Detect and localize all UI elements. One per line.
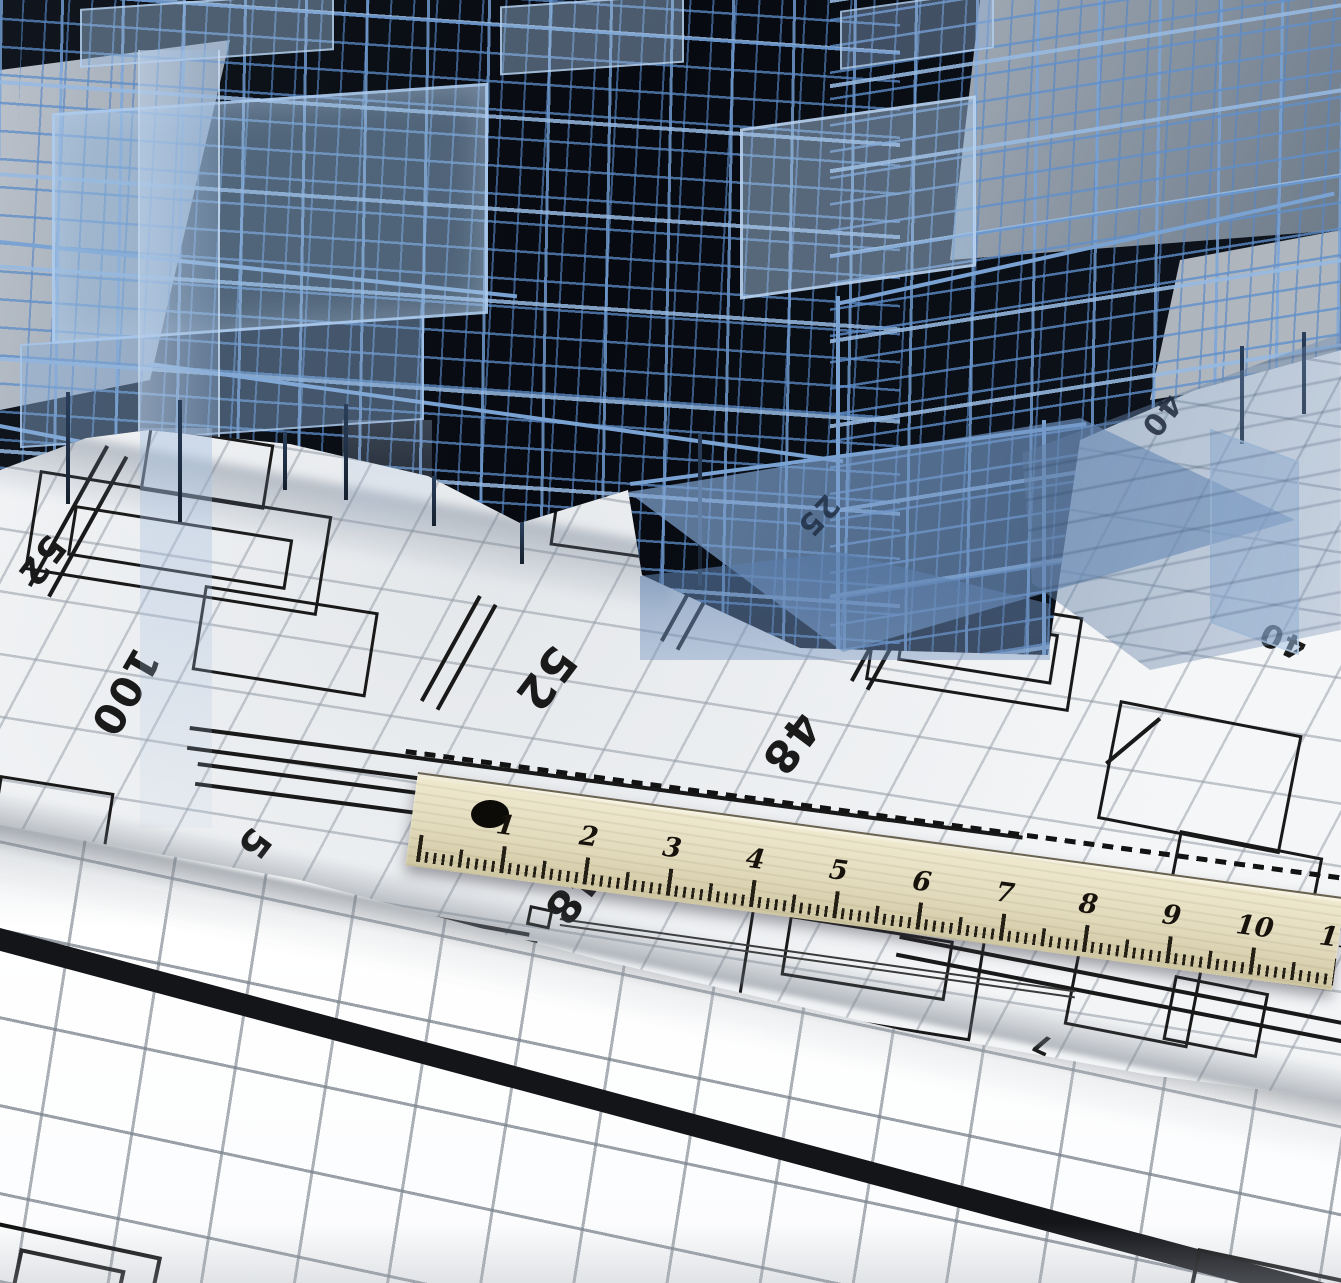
ruler-number: 10 — [1234, 909, 1275, 945]
building-leg — [66, 392, 70, 504]
building-leg — [344, 404, 348, 500]
ruler-number: 7 — [994, 877, 1017, 910]
building-leg — [432, 476, 436, 526]
ruler-number: 6 — [910, 865, 933, 898]
glass-column-ghost — [140, 428, 212, 828]
building-leg — [178, 400, 182, 522]
ruler-number: 9 — [1160, 899, 1183, 932]
ruler-number: 8 — [1077, 888, 1100, 921]
glass-column-ghost — [342, 420, 432, 530]
ruler-number: 11 — [1317, 920, 1341, 956]
ruler-number: 2 — [577, 820, 600, 853]
building-leg — [283, 432, 287, 490]
building-leg — [520, 522, 524, 564]
glass-slab — [740, 95, 976, 299]
glass-slab — [52, 83, 488, 344]
blueprint-scene: 52 100 52 48 5 48 40 7 — [0, 0, 1341, 1283]
ruler-number: 1 — [494, 809, 517, 842]
roll-bottom-shading — [0, 1223, 1341, 1283]
glass-slab — [500, 0, 684, 75]
ruler-number: 5 — [827, 854, 850, 887]
ruler-number: 3 — [661, 832, 684, 865]
ruler-number: 4 — [744, 843, 767, 876]
